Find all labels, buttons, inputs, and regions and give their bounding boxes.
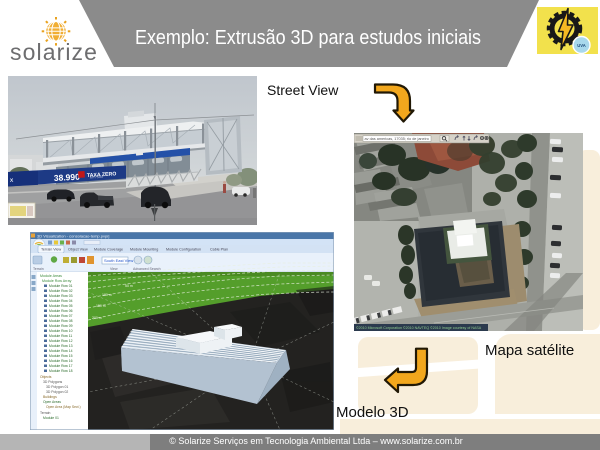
svg-text:Terrain: Terrain	[33, 267, 44, 271]
svg-text:3D Polygon 01: 3D Polygon 01	[46, 385, 68, 389]
svg-text:Module Row 02: Module Row 02	[49, 289, 73, 293]
svg-text:50 m: 50 m	[125, 284, 133, 288]
svg-text:Module Row 18: Module Row 18	[49, 369, 73, 373]
svg-text:Module 01: Module 01	[43, 416, 59, 420]
svg-text:3D Polygon 02: 3D Polygon 02	[46, 390, 68, 394]
svg-text:3D Polygons: 3D Polygons	[43, 380, 63, 384]
svg-text:Module Row 08: Module Row 08	[49, 319, 73, 323]
svg-text:Buildings: Buildings	[43, 395, 57, 399]
svg-text:Module Row 04: Module Row 04	[49, 299, 73, 303]
svg-text:3D Visualization - consolacao-: 3D Visualization - consolacao-temp.pvprj	[37, 233, 110, 238]
svg-text:Open Areas: Open Areas	[43, 400, 61, 404]
svg-text:Module Row 03: Module Row 03	[49, 294, 73, 298]
svg-text:UVA: UVA	[577, 43, 586, 48]
svg-text:Object View: Object View	[68, 248, 88, 252]
svg-text:Terrain View: Terrain View	[41, 248, 62, 252]
svg-text:100 m: 100 m	[102, 293, 112, 297]
svg-text:Module Row 16: Module Row 16	[49, 359, 73, 363]
svg-text:Module Row 17: Module Row 17	[49, 364, 73, 368]
svg-text:Module Areas: Module Areas	[40, 274, 62, 278]
svg-text:Module Configuration: Module Configuration	[166, 248, 201, 252]
svg-text:Module Row 10: Module Row 10	[49, 329, 73, 333]
svg-text:Module Row 15: Module Row 15	[49, 354, 73, 358]
svg-text:Objects: Objects	[40, 375, 52, 379]
svg-text:View: View	[110, 267, 118, 271]
svg-text:Cable Plan: Cable Plan	[210, 248, 228, 252]
svg-text:150 m: 150 m	[96, 304, 106, 308]
svg-text:Module Row 01: Module Row 01	[49, 284, 73, 288]
svg-text:Module Row 13: Module Row 13	[49, 344, 73, 348]
svg-text:South East View: South East View	[104, 258, 133, 263]
svg-text:Module Row 05: Module Row 05	[49, 304, 73, 308]
svg-text:Module Coverage: Module Coverage	[94, 248, 123, 252]
svg-text:38.990: 38.990	[54, 172, 81, 183]
svg-text:Open Area (Map Sect.): Open Area (Map Sect.)	[46, 405, 81, 409]
svg-text:Module Mounting: Module Mounting	[130, 248, 158, 252]
svg-text:Module Row 12: Module Row 12	[49, 339, 73, 343]
svg-text:Advanced Search: Advanced Search	[133, 267, 161, 271]
svg-text:Module Row 14: Module Row 14	[49, 349, 73, 353]
svg-text:Module Row 11: Module Row 11	[49, 334, 72, 338]
svg-text:200 m: 200 m	[92, 316, 102, 320]
svg-text:Terrain: Terrain	[40, 411, 50, 415]
svg-text:©2010 Microsoft Corporation ©2: ©2010 Microsoft Corporation ©2010 NAVTEQ…	[356, 326, 482, 330]
svg-text:Module Row Array: Module Row Array	[42, 279, 72, 283]
svg-text:Module Row 06: Module Row 06	[49, 309, 73, 313]
svg-text:Module Row 07: Module Row 07	[49, 314, 73, 318]
svg-text:av das americas, 17035; rio de: av das americas, 17035; rio de janeiro	[365, 137, 429, 141]
svg-text:Module Row 09: Module Row 09	[49, 324, 73, 328]
